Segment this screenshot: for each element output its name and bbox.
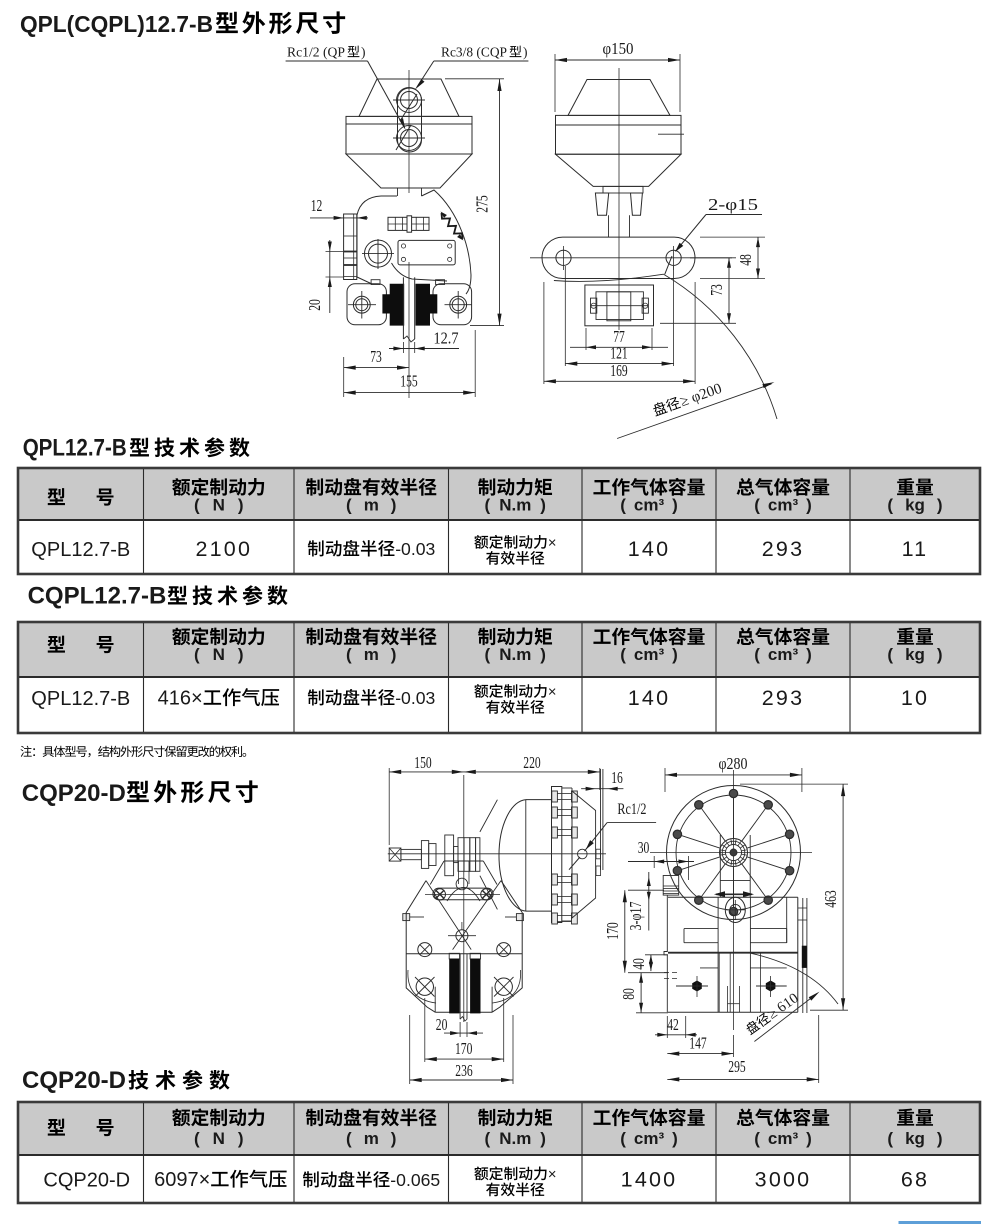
svg-text:cm³: cm³ [634,1129,665,1148]
svg-text:): ) [391,1129,397,1148]
svg-text:CQP20-D: CQP20-D [43,1170,130,1192]
svg-text:cm³: cm³ [634,496,665,515]
svg-text:3000: 3000 [755,1168,812,1192]
svg-text:20: 20 [305,299,324,311]
svg-text:φ280: φ280 [719,754,748,773]
svg-text:30: 30 [638,838,650,857]
svg-text:): ) [540,496,546,515]
svg-text:cm³: cm³ [768,645,799,664]
svg-text:m: m [364,496,379,515]
svg-text:1400: 1400 [621,1168,678,1192]
svg-text:): ) [672,496,678,515]
svg-text:(: ( [485,496,491,515]
svg-text:Rc1/2: Rc1/2 [617,801,646,818]
svg-text:6097×: 6097× [154,1169,210,1191]
svg-text:(: ( [346,645,352,664]
svg-text:): ) [523,45,528,60]
svg-text:cm³: cm³ [768,496,799,515]
svg-text:m: m [364,645,379,664]
svg-text:293: 293 [762,686,804,710]
svg-text:Rc3/8 (CQP: Rc3/8 (CQP [441,45,507,60]
svg-text:): ) [540,1129,546,1148]
svg-text:N.m: N.m [499,1129,531,1148]
svg-text:147: 147 [689,1034,707,1053]
svg-text:170: 170 [455,1039,472,1058]
svg-text:150: 150 [414,753,431,772]
svg-text:(: ( [620,645,626,664]
svg-text:(: ( [346,1129,352,1148]
svg-text:275: 275 [473,195,492,212]
svg-text:-0.065: -0.065 [390,1170,440,1190]
svg-text:-0.03: -0.03 [395,688,435,708]
svg-text:293: 293 [762,537,804,561]
svg-text:2-φ15: 2-φ15 [708,195,758,214]
svg-text:): ) [391,496,397,515]
svg-text:(: ( [485,645,491,664]
svg-text:): ) [238,1129,244,1148]
svg-text:cm³: cm³ [634,645,665,664]
svg-text:(: ( [754,645,760,664]
svg-text:N: N [213,1129,225,1148]
svg-text:463: 463 [821,890,840,907]
svg-text:(: ( [194,1129,200,1148]
svg-text:140: 140 [628,537,670,561]
svg-text:-0.03: -0.03 [395,539,435,559]
svg-text:68: 68 [901,1168,929,1192]
svg-text:20: 20 [436,1015,448,1034]
svg-text:×: × [548,536,557,552]
svg-text:12.7: 12.7 [434,329,459,348]
svg-text:): ) [672,1129,678,1148]
svg-text:(: ( [887,1129,893,1148]
svg-text:kg: kg [905,1129,925,1148]
svg-text:10: 10 [901,686,929,710]
svg-text:): ) [806,1129,812,1148]
svg-text:12: 12 [311,196,323,215]
svg-text:): ) [672,645,678,664]
svg-text:(: ( [194,496,200,515]
svg-text:QPL12.7-B: QPL12.7-B [31,688,130,710]
svg-text:(: ( [485,1129,491,1148]
svg-text:): ) [806,645,812,664]
svg-text:): ) [937,645,943,664]
svg-text:φ150: φ150 [603,39,634,58]
svg-text:155: 155 [400,372,417,391]
svg-text:N.m: N.m [499,496,531,515]
svg-text:kg: kg [905,645,925,664]
svg-text:): ) [937,1129,943,1148]
svg-text:220: 220 [523,753,540,772]
svg-text:42: 42 [667,1015,679,1034]
svg-text:73: 73 [370,347,382,366]
svg-text:11: 11 [902,537,929,561]
svg-text:73: 73 [707,284,726,296]
svg-text:Rc1/2 (QP: Rc1/2 (QP [287,45,345,60]
svg-text:): ) [238,496,244,515]
svg-text:): ) [540,645,546,664]
svg-text:169: 169 [610,361,627,380]
svg-text:): ) [806,496,812,515]
svg-text:295: 295 [728,1057,745,1076]
svg-text:(: ( [620,1129,626,1148]
svg-text:80: 80 [619,988,638,1000]
svg-text:2100: 2100 [195,537,252,561]
svg-text:CQPL12.7-B: CQPL12.7-B [28,583,167,610]
svg-text:QPL12.7-B: QPL12.7-B [23,435,127,462]
svg-text:QPL12.7-B: QPL12.7-B [31,539,130,561]
svg-text:236: 236 [455,1061,472,1080]
svg-text:3-φ17: 3-φ17 [626,901,645,930]
svg-text:416×: 416× [158,688,203,710]
svg-text:): ) [238,645,244,664]
svg-text:N: N [213,645,225,664]
svg-text:): ) [391,645,397,664]
svg-text:m: m [364,1129,379,1148]
svg-text:(: ( [620,496,626,515]
svg-text:170: 170 [603,922,622,939]
svg-text:N.m: N.m [499,645,531,664]
svg-text:×: × [548,685,557,701]
svg-text:(: ( [887,645,893,664]
svg-text:×: × [548,1167,557,1183]
svg-text:N: N [213,496,225,515]
svg-text:140: 140 [628,686,670,710]
svg-text:QPL(CQPL)12.7-B: QPL(CQPL)12.7-B [20,11,213,37]
svg-text:40: 40 [629,958,648,970]
svg-text:(: ( [887,496,893,515]
svg-text:(: ( [754,1129,760,1148]
svg-text:(: ( [346,496,352,515]
svg-text:(: ( [194,645,200,664]
svg-text:CQP20-D: CQP20-D [22,780,126,807]
svg-text:16: 16 [611,768,623,787]
svg-text:cm³: cm³ [768,1129,799,1148]
svg-text:kg: kg [905,496,925,515]
svg-text:CQP20-D: CQP20-D [22,1067,126,1094]
svg-text:(: ( [754,496,760,515]
svg-text:48: 48 [736,254,755,266]
svg-text:121: 121 [610,344,627,363]
svg-text:): ) [937,496,943,515]
svg-text:): ) [361,45,366,60]
